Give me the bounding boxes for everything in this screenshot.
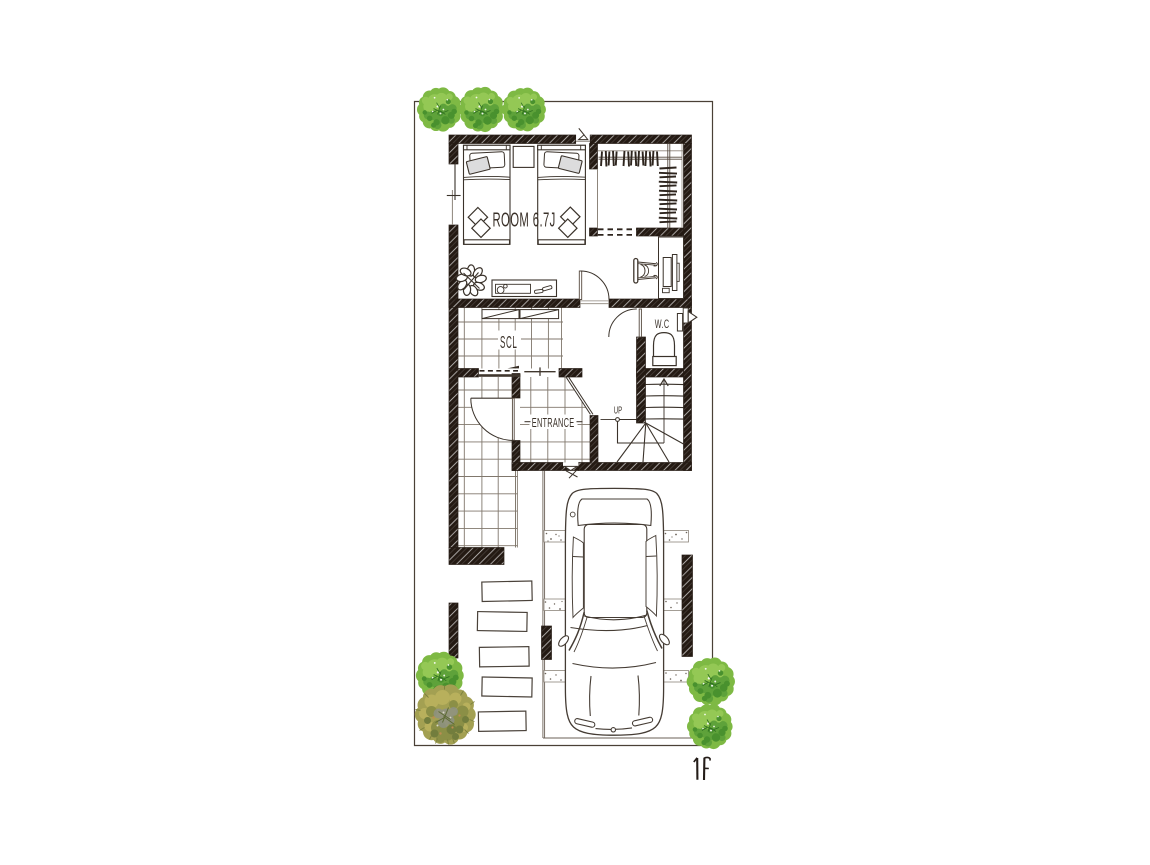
svg-text:W.C: W.C [655, 318, 670, 331]
svg-text:ROOM 6.7J: ROOM 6.7J [493, 209, 556, 231]
svg-text:ENTRANCE: ENTRANCE [532, 416, 575, 431]
svg-text:UP: UP [614, 404, 623, 416]
svg-text:SCL: SCL [500, 333, 518, 352]
